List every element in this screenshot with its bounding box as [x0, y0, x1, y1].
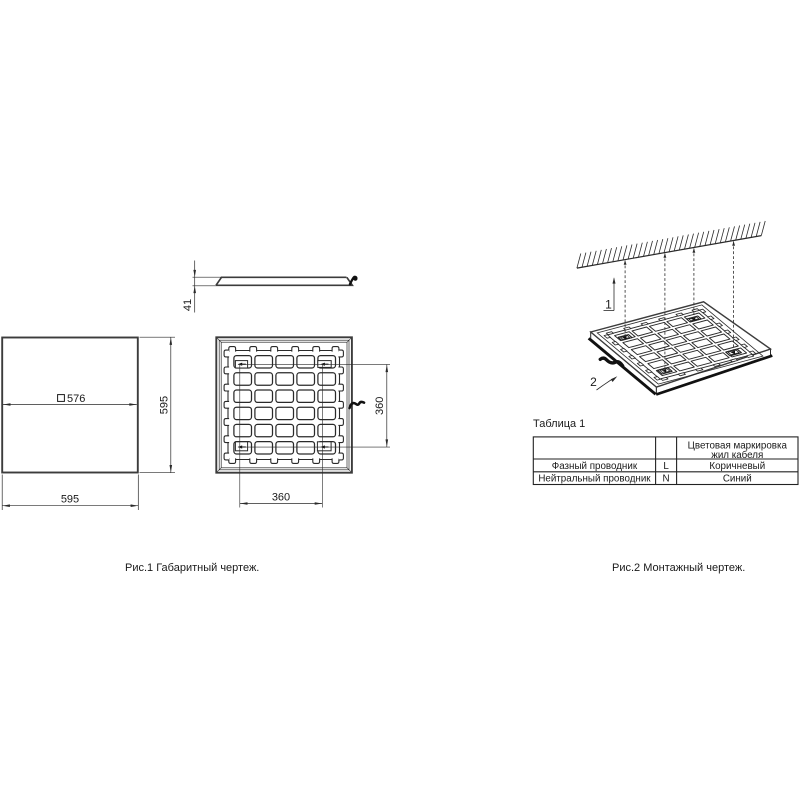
svg-text:1: 1	[605, 298, 612, 312]
svg-text:2: 2	[590, 375, 597, 389]
svg-text:360: 360	[374, 397, 386, 415]
svg-text:жил кабеля: жил кабеля	[711, 450, 763, 461]
svg-text:Синий: Синий	[723, 474, 752, 485]
svg-text:595: 595	[158, 396, 170, 414]
svg-text:Нейтральный проводник: Нейтральный проводник	[538, 474, 651, 485]
svg-text:Рис.1 Габаритный чертеж.: Рис.1 Габаритный чертеж.	[125, 562, 259, 574]
svg-text:Фазный проводник: Фазный проводник	[552, 461, 638, 472]
svg-text:595: 595	[61, 494, 79, 506]
svg-text:L: L	[663, 461, 669, 472]
svg-text:Рис.2 Монтажный чертеж.: Рис.2 Монтажный чертеж.	[612, 562, 745, 574]
svg-text:Коричневый: Коричневый	[709, 461, 765, 472]
svg-text:41: 41	[182, 299, 194, 311]
svg-text:360: 360	[272, 491, 290, 503]
svg-text:N: N	[663, 474, 670, 485]
svg-text:576: 576	[67, 393, 85, 405]
svg-text:Таблица 1: Таблица 1	[533, 418, 585, 430]
